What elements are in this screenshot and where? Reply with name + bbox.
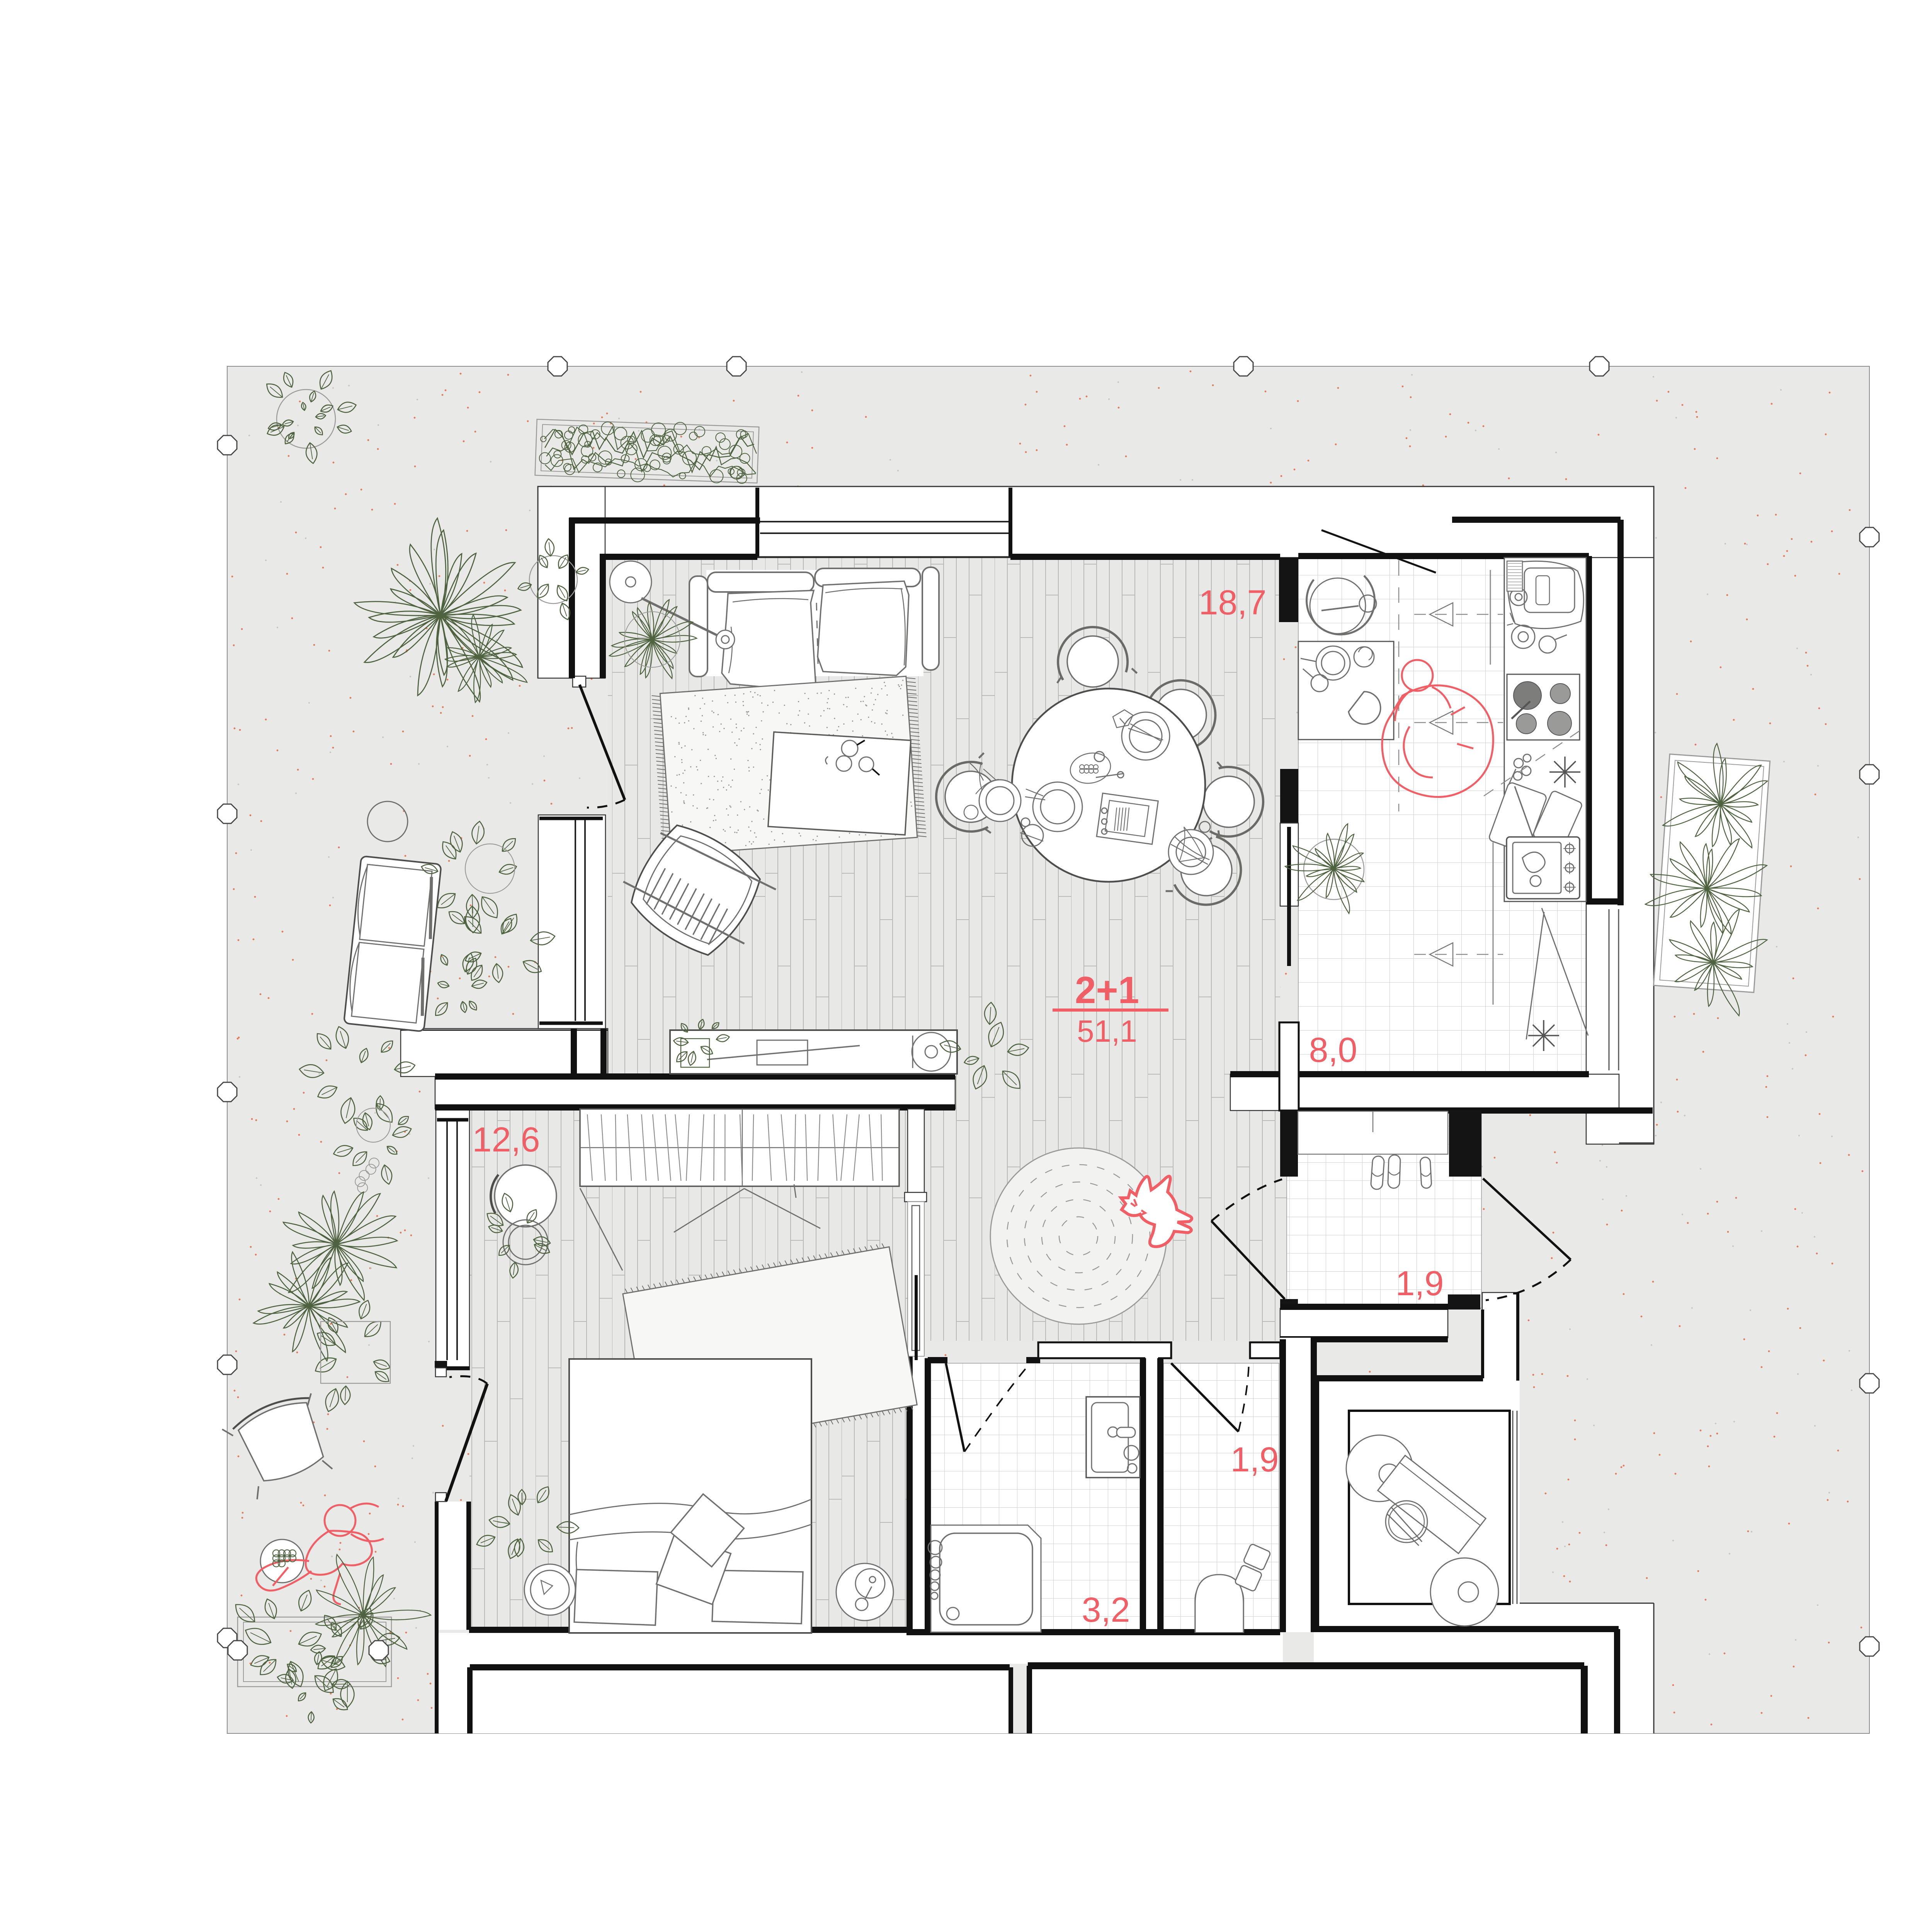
svg-text:1,9: 1,9 [1230, 1440, 1279, 1479]
svg-text:8,0: 8,0 [1309, 1031, 1357, 1070]
svg-text:1,9: 1,9 [1395, 1264, 1444, 1303]
svg-text:18,7: 18,7 [1199, 583, 1266, 622]
svg-text:12,6: 12,6 [472, 1121, 540, 1159]
svg-text:51,1: 51,1 [1077, 1014, 1137, 1048]
svg-text:2+1: 2+1 [1075, 969, 1139, 1011]
svg-text:3,2: 3,2 [1082, 1591, 1130, 1629]
